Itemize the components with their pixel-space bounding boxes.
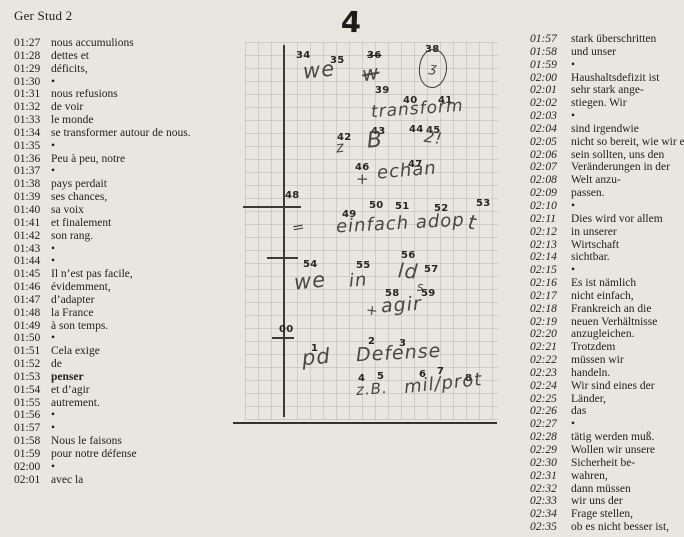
transcript-text: • <box>51 332 55 345</box>
transcript-row: 01:32de voir <box>14 101 246 114</box>
transcript-text: dettes et <box>51 50 89 63</box>
transcript-row: 02:06sein sollten, uns den <box>530 149 684 162</box>
timestamp: 02:24 <box>530 380 571 393</box>
note-handwriting-we1: we <box>302 58 336 82</box>
transcript-text: Sicherheit be- <box>571 457 635 470</box>
timestamp: 02:16 <box>530 277 571 290</box>
transcript-text: in unserer <box>571 226 617 239</box>
doc-title: Ger Stud 2 <box>14 8 72 24</box>
transcript-text: • <box>571 418 575 431</box>
transcript-text: Frage stellen, <box>571 508 633 521</box>
transcript-row: 01:54et d’agir <box>14 384 246 397</box>
note-tick-middle <box>267 257 298 259</box>
transcript-row: 02:33wir uns der <box>530 495 684 508</box>
transcript-row: 02:22müssen wir <box>530 354 684 367</box>
transcript-text: neuen Verhältnisse <box>571 316 657 329</box>
transcript-text: Trotzdem <box>571 341 615 354</box>
transcript-text: und unser <box>571 46 616 59</box>
transcript-row: 01:46évidemment, <box>14 281 246 294</box>
timestamp: 01:52 <box>14 358 51 371</box>
timestamp: 02:08 <box>530 174 571 187</box>
timestamp: 01:48 <box>14 307 51 320</box>
transcript-text: pour notre défense <box>51 448 137 461</box>
note-handwriting-echan: echan <box>376 159 437 182</box>
note-number-48: 48 <box>285 190 300 201</box>
transcript-text: Wirtschaft <box>571 239 619 252</box>
timestamp: 02:00 <box>530 72 571 85</box>
timestamp: 01:31 <box>14 88 51 101</box>
transcript-row: 02:20anzugleichen. <box>530 328 684 341</box>
transcript-row: 01:52de <box>14 358 246 371</box>
transcript-text: sichtbar. <box>571 251 610 264</box>
timestamp: 02:19 <box>530 316 571 329</box>
transcript-row: 02:04sind irgendwie <box>530 123 684 136</box>
transcript-text: se transformer autour de nous. <box>51 127 191 140</box>
timestamp: 02:33 <box>530 495 571 508</box>
transcript-row: 01:51Cela exige <box>14 345 246 358</box>
timestamp: 02:11 <box>530 213 571 226</box>
transcript-text: das <box>571 405 586 418</box>
transcript-text: Dies wird vor allem <box>571 213 663 226</box>
transcript-row: 01:31nous refusions <box>14 88 246 101</box>
transcript-text: Il n’est pas facile, <box>51 268 133 281</box>
note-handwriting-in: in <box>348 271 368 291</box>
timestamp: 01:44 <box>14 255 51 268</box>
note-number-50: 50 <box>369 200 384 211</box>
transcript-text: pays perdait <box>51 178 107 191</box>
transcript-text: passen. <box>571 187 605 200</box>
transcript-text: müssen wir <box>571 354 624 367</box>
note-handwriting-z: z <box>335 139 346 155</box>
timestamp: 02:00 <box>14 461 51 474</box>
transcript-row: 02:19neuen Verhältnisse <box>530 316 684 329</box>
transcript-text: • <box>51 255 55 268</box>
transcript-text: tätig werden muß. <box>571 431 654 444</box>
transcript-row: 02:10• <box>530 200 684 213</box>
transcript-row: 01:36Peu à peu, notre <box>14 153 246 166</box>
transcript-text: • <box>51 165 55 178</box>
note-number-53: 53 <box>476 198 491 209</box>
transcript-row: 02:14sichtbar. <box>530 251 684 264</box>
timestamp: 02:07 <box>530 161 571 174</box>
transcript-row: 02:30Sicherheit be- <box>530 457 684 470</box>
timestamp: 01:33 <box>14 114 51 127</box>
timestamp: 01:37 <box>14 165 51 178</box>
transcript-row: 01:38pays perdait <box>14 178 246 191</box>
timestamp: 02:30 <box>530 457 571 470</box>
transcript-text: sa voix <box>51 204 84 217</box>
transcript-text: wahren, <box>571 470 608 483</box>
transcript-row: 01:45Il n’est pas facile, <box>14 268 246 281</box>
transcript-row: 02:23handeln. <box>530 367 684 380</box>
note-handwriting-defense: Defense <box>356 342 442 365</box>
transcript-text: Es ist nämlich <box>571 277 636 290</box>
timestamp: 02:25 <box>530 393 571 406</box>
transcript-row: 02:01sehr stark ange- <box>530 84 684 97</box>
transcript-row: 01:30• <box>14 76 246 89</box>
note-handwriting-ld: ld <box>397 260 419 281</box>
transcript-row: 02:21Trotzdem <box>530 341 684 354</box>
timestamp: 02:22 <box>530 354 571 367</box>
scanned-document-page: Ger Stud 2 01:27nous accumulions01:28det… <box>0 0 684 537</box>
transcript-row: 02:26das <box>530 405 684 418</box>
transcript-text: sind irgendwie <box>571 123 639 136</box>
transcript-text: et d’agir <box>51 384 90 397</box>
transcript-text: son rang. <box>51 230 93 243</box>
timestamp: 02:31 <box>530 470 571 483</box>
transcript-text: • <box>571 110 575 123</box>
transcript-row: 01:28dettes et <box>14 50 246 63</box>
transcript-text: • <box>571 200 575 213</box>
note-handwriting-equals: = <box>291 219 307 236</box>
transcript-text: Länder, <box>571 393 606 406</box>
transcript-row: 02:29Wollen wir unsere <box>530 444 684 457</box>
transcript-text: nicht einfach, <box>571 290 634 303</box>
transcript-text: nous accumulions <box>51 37 134 50</box>
timestamp: 01:50 <box>14 332 51 345</box>
transcript-row: 02:03• <box>530 110 684 123</box>
timestamp: 01:46 <box>14 281 51 294</box>
timestamp: 01:51 <box>14 345 51 358</box>
transcript-text: ses chances, <box>51 191 107 204</box>
note-bottom-rule <box>233 422 497 424</box>
timestamp: 01:56 <box>14 409 51 422</box>
timestamp: 01:43 <box>14 243 51 256</box>
transcript-row: 02:17nicht einfach, <box>530 290 684 303</box>
transcript-text: Frankreich an die <box>571 303 651 316</box>
transcript-row: 01:42son rang. <box>14 230 246 243</box>
transcript-text: • <box>51 140 55 153</box>
timestamp: 01:57 <box>14 422 51 435</box>
transcript-text: sein sollten, uns den <box>571 149 664 162</box>
note-handwriting-crossed-word: w <box>360 62 381 85</box>
timestamp: 01:35 <box>14 140 51 153</box>
timestamp: 02:28 <box>530 431 571 444</box>
transcript-text: avec la <box>51 474 83 487</box>
timestamp: 02:09 <box>530 187 571 200</box>
transcript-text: • <box>571 59 575 72</box>
timestamp: 02:12 <box>530 226 571 239</box>
transcript-text: Cela exige <box>51 345 100 358</box>
transcript-text: Wollen wir unsere <box>571 444 655 457</box>
note-handwriting-we2: we <box>293 269 327 293</box>
transcript-row: 01:44• <box>14 255 246 268</box>
note-handwriting-two-excl: 2! <box>423 129 444 147</box>
note-tick-48 <box>243 206 301 208</box>
transcript-text: de voir <box>51 101 83 114</box>
transcript-text: Veränderungen in der <box>571 161 670 174</box>
transcript-row: 01:27nous accumulions <box>14 37 246 50</box>
transcript-text: d’adapter <box>51 294 94 307</box>
note-tick-00 <box>272 337 294 339</box>
transcript-row: 01:58und unser <box>530 46 684 59</box>
transcript-text: de <box>51 358 62 371</box>
timestamp: 02:01 <box>14 474 51 487</box>
timestamp: 01:54 <box>14 384 51 397</box>
transcript-text: • <box>51 409 55 422</box>
transcript-row: 02:25Länder, <box>530 393 684 406</box>
transcript-row: 02:16Es ist nämlich <box>530 277 684 290</box>
transcript-text: • <box>51 461 55 474</box>
note-handwriting-plus1: + <box>356 172 370 187</box>
note-page-number: 4 <box>340 5 361 40</box>
transcript-text: déficits, <box>51 63 88 76</box>
transcript-text: • <box>51 76 55 89</box>
transcript-text: évidemment, <box>51 281 111 294</box>
timestamp: 01:38 <box>14 178 51 191</box>
timestamp: 01:58 <box>530 46 571 59</box>
transcript-text: anzugleichen. <box>571 328 635 341</box>
timestamp: 01:57 <box>530 33 571 46</box>
transcript-row: 02:05nicht so bereit, wie wir es <box>530 136 684 149</box>
transcript-row: 01:59• <box>530 59 684 72</box>
transcript-row: 01:57stark überschritten <box>530 33 684 46</box>
transcript-row: 02:11Dies wird vor allem <box>530 213 684 226</box>
timestamp: 02:20 <box>530 328 571 341</box>
timestamp: 02:21 <box>530 341 571 354</box>
timestamp: 02:35 <box>530 521 571 534</box>
timestamp: 01:32 <box>14 101 51 114</box>
timestamp: 01:59 <box>530 59 571 72</box>
transcript-row: 01:39ses chances, <box>14 191 246 204</box>
transcript-row: 01:33le monde <box>14 114 246 127</box>
timestamp: 01:40 <box>14 204 51 217</box>
transcript-row: 02:07Veränderungen in der <box>530 161 684 174</box>
transcript-row: 01:35• <box>14 140 246 153</box>
transcript-text: la France <box>51 307 93 320</box>
note-number-51: 51 <box>395 201 410 212</box>
transcript-text: stiegen. Wir <box>571 97 627 110</box>
transcript-text: Wir sind eines der <box>571 380 655 393</box>
transcript-text: handeln. <box>571 367 610 380</box>
transcript-text: • <box>571 264 575 277</box>
timestamp: 01:34 <box>14 127 51 140</box>
timestamp: 02:17 <box>530 290 571 303</box>
transcript-row: 01:49à son temps. <box>14 320 246 333</box>
transcript-row: 01:48la France <box>14 307 246 320</box>
transcript-row: 01:57• <box>14 422 246 435</box>
transcript-text: Nous le faisons <box>51 435 122 448</box>
transcript-text: à son temps. <box>51 320 108 333</box>
transcript-row: 02:27• <box>530 418 684 431</box>
right-transcript-column: 01:57stark überschritten01:58und unser01… <box>530 33 684 534</box>
transcript-text: penser <box>51 371 84 384</box>
timestamp: 02:06 <box>530 149 571 162</box>
timestamp: 02:14 <box>530 251 571 264</box>
timestamp: 02:27 <box>530 418 571 431</box>
transcript-row: 02:34Frage stellen, <box>530 508 684 521</box>
timestamp: 02:15 <box>530 264 571 277</box>
transcript-text: wir uns der <box>571 495 623 508</box>
transcript-row: 02:02stiegen. Wir <box>530 97 684 110</box>
transcript-text: nous refusions <box>51 88 118 101</box>
transcript-row: 01:29déficits, <box>14 63 246 76</box>
timestamp: 01:47 <box>14 294 51 307</box>
timestamp: 01:29 <box>14 63 51 76</box>
timestamp: 02:32 <box>530 483 571 496</box>
note-handwriting-plus2: + <box>365 303 380 319</box>
timestamp: 02:13 <box>530 239 571 252</box>
note-number-44: 44 <box>409 124 424 135</box>
note-handwriting-agir: agir <box>380 295 422 317</box>
timestamp: 02:29 <box>530 444 571 457</box>
transcript-row: 02:24Wir sind eines der <box>530 380 684 393</box>
transcript-row: 01:41et finalement <box>14 217 246 230</box>
note-number-39: 39 <box>375 85 390 96</box>
transcript-row: 01:40sa voix <box>14 204 246 217</box>
timestamp: 02:04 <box>530 123 571 136</box>
transcript-text: Haushaltsdefizit ist <box>571 72 659 85</box>
transcript-row: 01:56• <box>14 409 246 422</box>
transcript-row: 01:50• <box>14 332 246 345</box>
timestamp: 02:18 <box>530 303 571 316</box>
transcript-text: ob es nicht besser ist, <box>571 521 669 534</box>
note-handwriting-zb: z.B. <box>356 381 389 398</box>
transcript-text: autrement. <box>51 397 100 410</box>
timestamp: 01:28 <box>14 50 51 63</box>
timestamp: 01:49 <box>14 320 51 333</box>
transcript-row: 01:43• <box>14 243 246 256</box>
transcript-row: 02:15• <box>530 264 684 277</box>
note-vertical-axis-line <box>283 45 285 417</box>
timestamp: 02:02 <box>530 97 571 110</box>
timestamp: 02:05 <box>530 136 571 149</box>
transcript-row: 01:47d’adapter <box>14 294 246 307</box>
transcript-row: 02:00Haushaltsdefizit ist <box>530 72 684 85</box>
transcript-text: stark überschritten <box>571 33 656 46</box>
transcript-row: 02:13Wirtschaft <box>530 239 684 252</box>
transcript-row: 02:32dann müssen <box>530 483 684 496</box>
transcript-text: le monde <box>51 114 93 127</box>
transcript-row: 01:37• <box>14 165 246 178</box>
timestamp: 01:53 <box>14 371 51 384</box>
timestamp: 02:23 <box>530 367 571 380</box>
note-handwriting-s-sub: s <box>417 281 424 293</box>
timestamp: 01:59 <box>14 448 51 461</box>
timestamp: 02:34 <box>530 508 571 521</box>
transcript-row: 01:58Nous le faisons <box>14 435 246 448</box>
transcript-row: 01:53penser <box>14 371 246 384</box>
timestamp: 01:36 <box>14 153 51 166</box>
transcript-row: 01:55autrement. <box>14 397 246 410</box>
transcript-row: 02:08Welt anzu- <box>530 174 684 187</box>
timestamp: 02:10 <box>530 200 571 213</box>
transcript-row: 01:59pour notre défense <box>14 448 246 461</box>
transcript-text: sehr stark ange- <box>571 84 644 97</box>
transcript-row: 02:28tätig werden muß. <box>530 431 684 444</box>
timestamp: 01:41 <box>14 217 51 230</box>
note-number-00: 00 <box>279 324 294 335</box>
note-handwriting-B: B <box>366 129 384 152</box>
transcript-row: 02:09passen. <box>530 187 684 200</box>
timestamp: 01:42 <box>14 230 51 243</box>
timestamp: 02:26 <box>530 405 571 418</box>
transcript-text: • <box>51 243 55 256</box>
transcript-row: 02:18Frankreich an die <box>530 303 684 316</box>
transcript-row: 02:31wahren, <box>530 470 684 483</box>
transcript-text: et finalement <box>51 217 111 230</box>
transcript-row: 02:00• <box>14 461 246 474</box>
transcript-row: 02:01avec la <box>14 474 246 487</box>
note-number-57: 57 <box>424 264 439 275</box>
timestamp: 02:03 <box>530 110 571 123</box>
transcript-text: Peu à peu, notre <box>51 153 125 166</box>
timestamp: 01:55 <box>14 397 51 410</box>
transcript-text: Welt anzu- <box>571 174 621 187</box>
transcript-row: 02:12in unserer <box>530 226 684 239</box>
note-handwriting-pd: pd <box>301 346 331 369</box>
transcript-text: • <box>51 422 55 435</box>
timestamp: 01:30 <box>14 76 51 89</box>
transcript-row: 01:34se transformer autour de nous. <box>14 127 246 140</box>
transcript-text: nicht so bereit, wie wir es <box>571 136 684 149</box>
timestamp: 01:58 <box>14 435 51 448</box>
transcript-text: dann müssen <box>571 483 631 496</box>
transcript-row: 02:35ob es nicht besser ist, <box>530 521 684 534</box>
timestamp: 02:01 <box>530 84 571 97</box>
timestamp: 01:45 <box>14 268 51 281</box>
timestamp: 01:27 <box>14 37 51 50</box>
timestamp: 01:39 <box>14 191 51 204</box>
left-transcript-column: 01:27nous accumulions01:28dettes et01:29… <box>14 37 246 487</box>
